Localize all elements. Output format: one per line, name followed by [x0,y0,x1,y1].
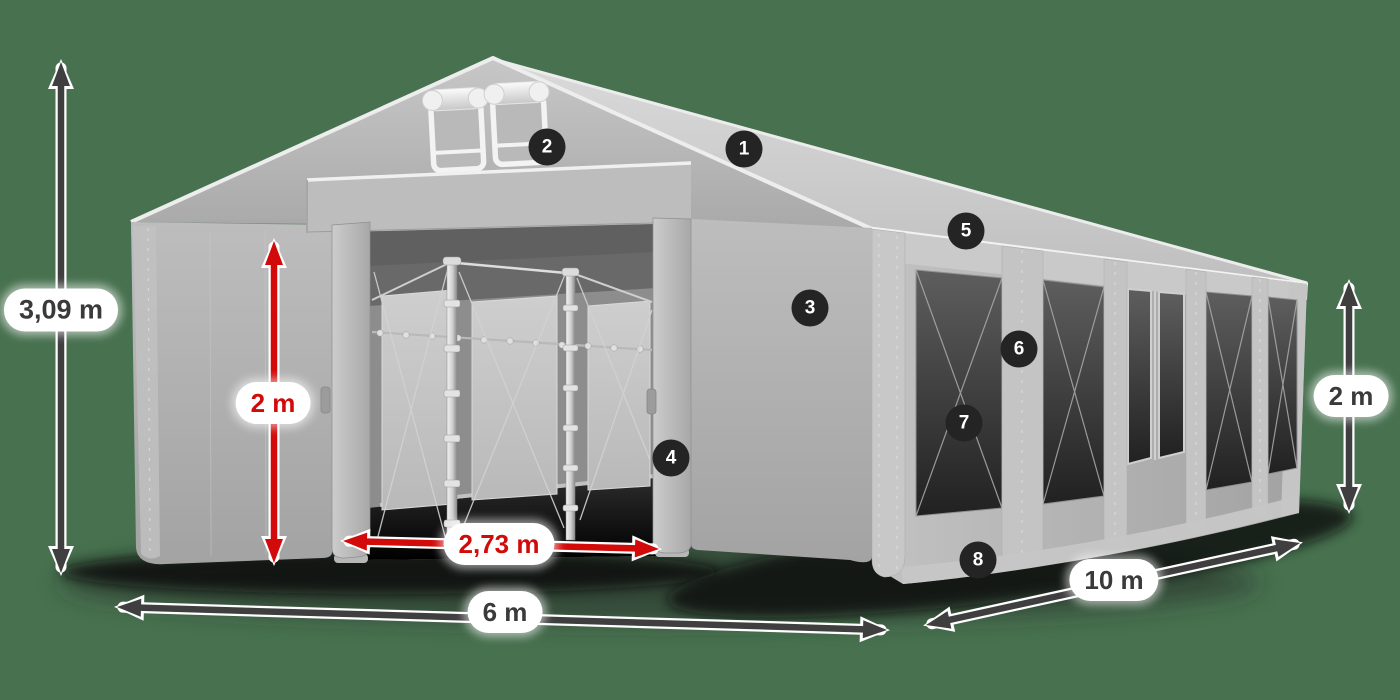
dimension-label-side-wall-height: 2 m [1314,375,1389,417]
callout-badge-2: 2 [529,129,566,166]
tent-dimensions-diagram: 3,09 m 2 m 2,73 m 6 m 10 m 2 m 1 2 3 4 5… [0,0,1400,700]
entrance-right-jamb [653,218,691,553]
callout-badge-1: 1 [726,131,763,168]
callout-badge-8: 8 [960,542,997,579]
entrance-handle-left [321,387,330,413]
corner-post [872,229,905,577]
dimension-label-total-height: 3,09 m [4,289,118,332]
dimension-label-front-width: 6 m [468,591,543,633]
entrance-interior [368,216,656,560]
callout-badge-6: 6 [1001,331,1038,368]
dimension-label-entrance-width: 2,73 m [444,523,555,565]
entrance-left-jamb [332,222,370,558]
dimension-label-entrance-height: 2 m [236,382,311,424]
callout-badge-5: 5 [948,213,985,250]
tent-illustration [0,0,1400,700]
callout-badge-3: 3 [792,290,829,327]
callout-badge-7: 7 [946,405,983,442]
entrance-handle-right [647,389,656,414]
dimension-label-side-length: 10 m [1069,559,1158,601]
callout-badge-4: 4 [653,440,690,477]
